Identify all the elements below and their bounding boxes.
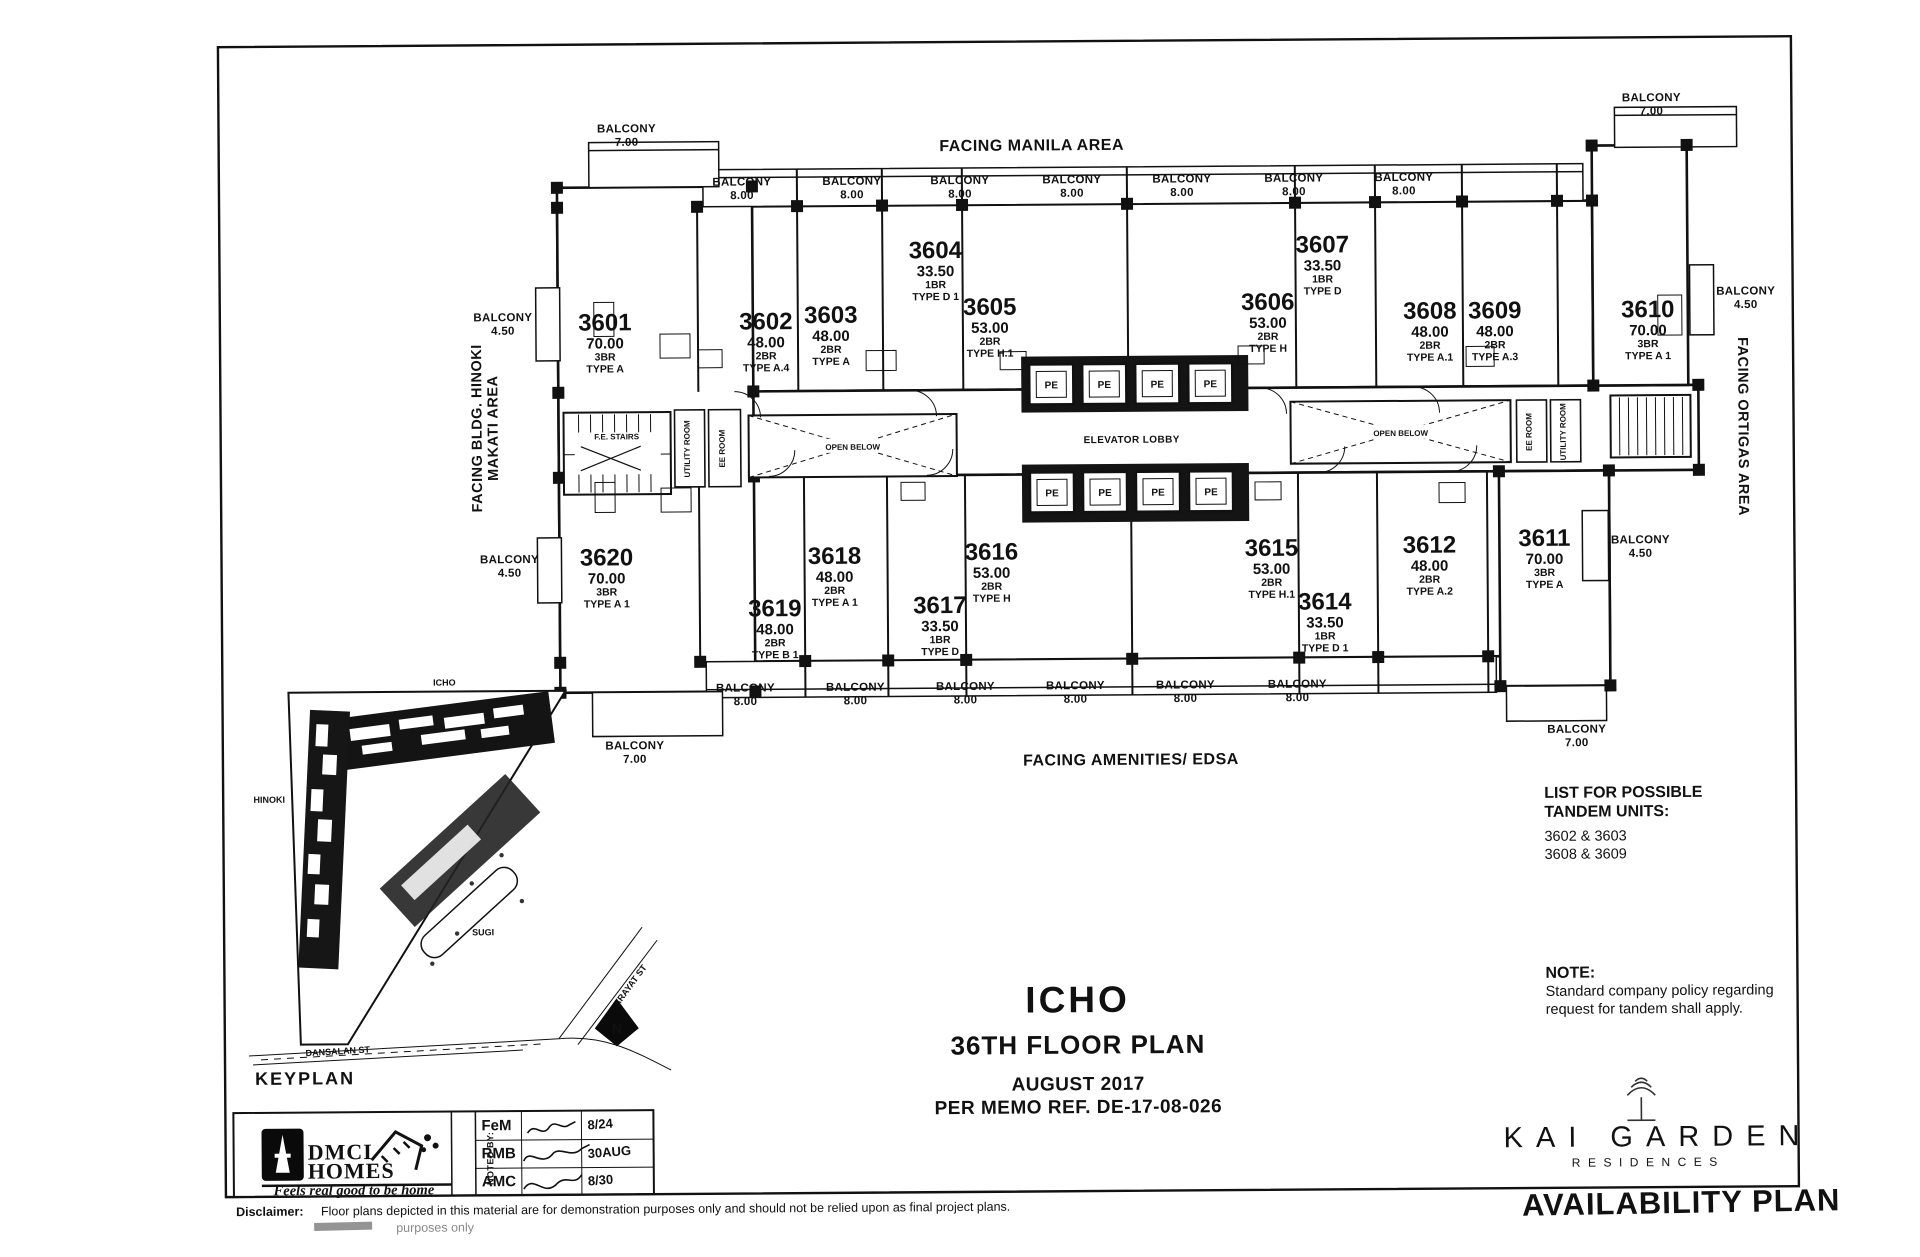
balcony-label: BALCONY bbox=[822, 176, 881, 188]
dmci-tagline: Feels real good to be home bbox=[274, 1182, 435, 1200]
wall-junction bbox=[1604, 679, 1616, 691]
wall-junction bbox=[876, 199, 888, 211]
unit-bedrooms: 2BR bbox=[756, 350, 778, 362]
balcony-label: BALCONY bbox=[1611, 534, 1670, 546]
wall-junction bbox=[1586, 195, 1598, 207]
balcony-size: 4.50 bbox=[1734, 299, 1758, 311]
unit-number: 3616 bbox=[965, 539, 1019, 566]
balcony-label: BALCONY bbox=[1622, 92, 1681, 104]
signatures bbox=[523, 1122, 589, 1189]
wall-junction bbox=[1372, 651, 1384, 663]
fire-exit-stairs-right bbox=[1610, 395, 1690, 458]
open-below-label: OPEN BELOW bbox=[825, 443, 880, 452]
unit-bedrooms: 3BR bbox=[596, 586, 618, 598]
unit-number: 3606 bbox=[1241, 289, 1295, 316]
unit-wall bbox=[1487, 471, 1488, 656]
facing-manila-label: FACING MANILA AREA bbox=[939, 137, 1124, 156]
unit-wall bbox=[1298, 473, 1299, 658]
balcony-size: 8.00 bbox=[1170, 187, 1194, 199]
unit-wall bbox=[1377, 472, 1378, 657]
unit-wall bbox=[1375, 202, 1376, 387]
unit-area: 70.00 bbox=[1526, 551, 1564, 568]
unit-wall bbox=[804, 476, 805, 661]
unit-number: 3615 bbox=[1245, 535, 1299, 562]
unit-area: 53.00 bbox=[1253, 561, 1291, 578]
wall-junction bbox=[960, 654, 972, 666]
utility-room-label: UTILITY ROOM bbox=[1558, 403, 1567, 461]
unit-bedrooms: 3BR bbox=[1534, 567, 1556, 579]
wall-junction bbox=[1681, 139, 1693, 151]
balcony-label: BALCONY bbox=[1716, 285, 1775, 297]
approval-initials: AMC bbox=[482, 1173, 516, 1190]
balcony-size: 8.00 bbox=[734, 696, 758, 708]
wall-junction bbox=[1289, 197, 1301, 209]
unit-bedrooms: 3BR bbox=[1637, 338, 1659, 350]
wall-junction bbox=[1482, 650, 1494, 662]
unit-area: 33.50 bbox=[917, 263, 955, 280]
unit-number: 3611 bbox=[1518, 525, 1570, 552]
elevator-pe-label: PE bbox=[1045, 380, 1059, 391]
unit-bedrooms: 3BR bbox=[595, 351, 617, 363]
elevator-pe-label: PE bbox=[1204, 487, 1218, 498]
balcony-size: 8.00 bbox=[1392, 185, 1416, 197]
unit-bedrooms: 1BR bbox=[925, 279, 947, 291]
unit-type: TYPE D bbox=[1304, 285, 1342, 297]
unit-type: TYPE A.4 bbox=[743, 362, 790, 374]
unit-type: TYPE A 1 bbox=[812, 597, 858, 609]
balcony-label: BALCONY bbox=[1264, 172, 1323, 184]
balcony-size: 7.00 bbox=[1565, 737, 1589, 749]
unit-area: 33.50 bbox=[1306, 614, 1344, 631]
balcony-label: BALCONY bbox=[716, 682, 775, 694]
unit-area: 48.00 bbox=[1476, 323, 1514, 340]
balcony-label: BALCONY bbox=[1156, 679, 1215, 691]
wall-junction bbox=[882, 654, 894, 666]
tree-stamp-icon bbox=[1627, 1078, 1655, 1120]
unit-bedrooms: 2BR bbox=[1419, 574, 1441, 586]
balcony-size: 4.50 bbox=[498, 568, 522, 580]
balcony-label: BALCONY bbox=[1268, 678, 1327, 690]
unit-area: 53.00 bbox=[971, 320, 1009, 337]
unit-number: 3612 bbox=[1403, 532, 1457, 559]
wall-junction bbox=[1692, 379, 1704, 391]
balcony-label: BALCONY bbox=[1046, 680, 1105, 692]
keyplan-hinoki-label: HINOKI bbox=[253, 795, 285, 805]
balcony-size: 8.00 bbox=[948, 188, 972, 200]
unit-number: 3610 bbox=[1621, 296, 1675, 323]
wall-junction bbox=[791, 200, 803, 212]
unit-wall bbox=[887, 476, 888, 661]
unit-type: TYPE A.1 bbox=[1407, 352, 1454, 364]
kai-garden-residences: RESIDENCES bbox=[1572, 1155, 1725, 1170]
unit-bedrooms: 2BR bbox=[821, 344, 843, 356]
wall-junction bbox=[551, 202, 563, 214]
unit-area: 48.00 bbox=[756, 621, 794, 638]
plan-date: AUGUST 2017 bbox=[1011, 1074, 1144, 1097]
balcony-size: 8.00 bbox=[954, 694, 978, 706]
unit-area: 48.00 bbox=[816, 569, 854, 586]
disclaimer-label: Disclaimer: bbox=[236, 1205, 304, 1219]
wall-junction bbox=[1551, 195, 1563, 207]
unit-type: TYPE A.2 bbox=[1407, 586, 1454, 598]
ee-room-label: EE ROOM bbox=[1525, 413, 1534, 451]
wall-junction bbox=[694, 656, 706, 668]
facing-ortigas-label: FACING ORTIGAS AREA bbox=[1734, 337, 1751, 516]
facing-makati-label: FACING BLDG. HINOKI MAKATI AREA bbox=[469, 344, 502, 512]
balcony-label: BALCONY bbox=[480, 554, 539, 566]
wall-junction bbox=[554, 657, 566, 669]
wall-junction bbox=[1494, 680, 1506, 692]
unit-number: 3607 bbox=[1296, 231, 1350, 258]
unit-area: 48.00 bbox=[747, 334, 785, 351]
wall-junction bbox=[552, 387, 564, 399]
unit-area: 33.50 bbox=[1304, 257, 1342, 274]
approval-initials: FeM bbox=[481, 1117, 511, 1134]
wall-junction bbox=[1693, 464, 1705, 476]
fe-stairs-label: F.E. STAIRS bbox=[594, 432, 639, 441]
north-label: N bbox=[612, 1020, 622, 1036]
disclaimer-fragment: purposes only bbox=[396, 1220, 474, 1235]
balcony-size: 8.00 bbox=[1064, 694, 1088, 706]
balcony-size: 8.00 bbox=[840, 189, 864, 201]
wall-junction bbox=[1456, 195, 1468, 207]
open-below-left: OPEN BELOW bbox=[749, 414, 957, 477]
elevator-pe-label: PE bbox=[1204, 379, 1218, 390]
unit-type: TYPE H.1 bbox=[967, 348, 1014, 360]
balcony-label: BALCONY bbox=[1547, 723, 1606, 735]
unit-type: TYPE D 1 bbox=[912, 291, 959, 303]
unit-wall bbox=[965, 475, 966, 660]
balcony-label: BALCONY bbox=[930, 175, 989, 187]
unit-number: 3620 bbox=[580, 544, 634, 571]
unit-number: 3617 bbox=[913, 592, 967, 619]
unit-number: 3619 bbox=[748, 595, 802, 622]
unit-bedrooms: 1BR bbox=[930, 634, 952, 646]
open-below-right: OPEN BELOW bbox=[1290, 400, 1510, 464]
unit-type: TYPE A bbox=[812, 356, 850, 368]
balcony-size: 8.00 bbox=[730, 190, 754, 202]
elevator-pe-label: PE bbox=[1098, 380, 1112, 391]
tandem-note: NOTE: Standard company policy regarding … bbox=[1545, 962, 1773, 1019]
unit-bedrooms: 2BR bbox=[979, 336, 1001, 348]
unit-number: 3618 bbox=[808, 543, 862, 570]
wall-junction bbox=[1603, 464, 1615, 476]
unit-number: 3608 bbox=[1403, 298, 1457, 325]
unit-area: 48.00 bbox=[1411, 558, 1449, 575]
unit-bedrooms: 2BR bbox=[824, 585, 846, 597]
memo-reference: PER MEMO REF. DE-17-08-026 bbox=[935, 1096, 1223, 1120]
approval-date: 8/24 bbox=[587, 1116, 613, 1133]
balcony-size: 8.00 bbox=[1286, 692, 1310, 704]
unit-number: 3609 bbox=[1468, 297, 1522, 324]
unit-area: 70.00 bbox=[1629, 322, 1667, 339]
unit-area: 70.00 bbox=[588, 570, 626, 587]
unit-number: 3601 bbox=[578, 309, 632, 336]
unit-type: TYPE D bbox=[921, 646, 959, 658]
unit-bedrooms: 2BR bbox=[1419, 340, 1441, 352]
wall-junction bbox=[1586, 140, 1598, 152]
kai-garden-wordmark: KAI GARDEN bbox=[1503, 1120, 1812, 1155]
approval-date: 8/30 bbox=[587, 1172, 613, 1189]
unit-bedrooms: 1BR bbox=[1315, 630, 1337, 642]
wall-junction bbox=[799, 655, 811, 667]
balcony-label: BALCONY bbox=[936, 681, 995, 693]
balcony-size: 7.00 bbox=[1640, 106, 1664, 118]
fire-exit-stairs-left: F.E. STAIRS bbox=[563, 412, 671, 495]
unit-type: TYPE A bbox=[586, 363, 624, 375]
scanned-page: F.E. STAIRS UTILITY ROOM EE ROOM OPEN BE… bbox=[0, 0, 1920, 1257]
floor-plan-title: 36TH FLOOR PLAN bbox=[950, 1029, 1205, 1062]
keyplan-sugi-label: SUGI bbox=[472, 927, 494, 937]
project-title: ICHO bbox=[1025, 979, 1130, 1022]
unit-type: TYPE B 1 bbox=[752, 649, 799, 661]
unit-wall bbox=[1462, 201, 1463, 386]
wall-junction bbox=[1121, 198, 1133, 210]
balcony-label: BALCONY bbox=[1152, 173, 1211, 185]
unit-wall bbox=[1557, 201, 1558, 386]
balcony-size: 8.00 bbox=[1060, 188, 1084, 200]
unit-number: 3602 bbox=[739, 308, 793, 335]
elevator-pe-label: PE bbox=[1151, 380, 1165, 391]
balcony-size: 8.00 bbox=[1174, 693, 1198, 705]
balcony-label: BALCONY bbox=[826, 682, 885, 694]
availability-plan-sheet: F.E. STAIRS UTILITY ROOM EE ROOM OPEN BE… bbox=[0, 0, 1920, 1257]
unit-type: TYPE A 1 bbox=[584, 598, 630, 610]
balcony-size: 7.00 bbox=[623, 754, 647, 766]
unit-number: 3604 bbox=[909, 237, 963, 264]
unit-number: 3605 bbox=[963, 294, 1017, 321]
unit-area: 70.00 bbox=[586, 335, 624, 352]
wall-junction bbox=[1587, 380, 1599, 392]
unit-bedrooms: 2BR bbox=[1484, 339, 1506, 351]
unit-area: 33.50 bbox=[921, 618, 959, 635]
balcony-label: BALCONY bbox=[1374, 172, 1433, 184]
facing-amenities-label: FACING AMENITIES/ EDSA bbox=[1023, 751, 1239, 771]
balcony-size: 8.00 bbox=[1282, 186, 1306, 198]
balcony-size: 8.00 bbox=[844, 695, 868, 707]
unit-area: 48.00 bbox=[1411, 324, 1449, 341]
scan-smudge bbox=[314, 1222, 372, 1231]
wall-junction bbox=[1126, 653, 1138, 665]
unit-wall bbox=[797, 206, 798, 391]
balcony-size: 7.00 bbox=[615, 137, 639, 149]
unit-type: TYPE A.3 bbox=[1472, 351, 1519, 363]
elevator-pe-label: PE bbox=[1045, 488, 1059, 499]
utility-room-label: UTILITY ROOM bbox=[683, 420, 692, 478]
keyplan-dansalan-label: DANSALAN ST bbox=[305, 1044, 370, 1058]
balcony-label: BALCONY bbox=[605, 740, 664, 752]
balcony-label: BALCONY bbox=[712, 176, 771, 188]
unit-area: 48.00 bbox=[812, 328, 850, 345]
unit-number: 3614 bbox=[1298, 588, 1352, 615]
unit-type: TYPE H bbox=[1249, 343, 1287, 355]
unit-type: TYPE D 1 bbox=[1302, 642, 1349, 654]
unit-number: 3603 bbox=[804, 302, 858, 329]
unit-wall bbox=[882, 206, 883, 391]
wall-junction bbox=[1493, 465, 1505, 477]
unit-area: 53.00 bbox=[1249, 315, 1287, 332]
unit-wall bbox=[699, 477, 700, 662]
unit-bedrooms: 2BR bbox=[765, 637, 787, 649]
unit-type: TYPE H bbox=[973, 593, 1011, 605]
balcony-size: 4.50 bbox=[1629, 548, 1653, 560]
availability-plan-title: AVAILABILITY PLAN bbox=[1522, 1182, 1841, 1224]
north-arrow-icon: N bbox=[595, 998, 639, 1046]
unit-type: TYPE H.1 bbox=[1248, 589, 1295, 601]
elevator-pe-label: PE bbox=[1098, 488, 1112, 499]
unit-bedrooms: 2BR bbox=[981, 581, 1003, 593]
unit-bedrooms: 1BR bbox=[1312, 273, 1334, 285]
ee-room-label: EE ROOM bbox=[718, 429, 727, 467]
elevator-lobby-label: ELEVATOR LOBBY bbox=[1084, 434, 1180, 446]
open-below-label: OPEN BELOW bbox=[1373, 429, 1428, 438]
balcony-label: BALCONY bbox=[1042, 174, 1101, 186]
balcony-size: 4.50 bbox=[491, 326, 515, 338]
wall-junction bbox=[691, 201, 703, 213]
balcony-label: BALCONY bbox=[473, 312, 532, 324]
elevator-pe-label: PE bbox=[1151, 488, 1165, 499]
wall-junction bbox=[956, 199, 968, 211]
keyplan-icho-label: ICHO bbox=[433, 678, 456, 688]
unit-bedrooms: 2BR bbox=[1261, 577, 1283, 589]
wall-junction bbox=[1369, 196, 1381, 208]
balcony-label: BALCONY bbox=[597, 123, 656, 135]
keyplan-title: KEYPLAN bbox=[255, 1068, 355, 1090]
dmci-homes-wordmark: DMCI HOMES bbox=[308, 1142, 395, 1181]
unit-area: 53.00 bbox=[973, 565, 1011, 582]
wall-junction bbox=[551, 182, 563, 194]
unit-bedrooms: 2BR bbox=[1257, 331, 1279, 343]
unit-type: TYPE A 1 bbox=[1625, 350, 1671, 362]
tandem-units-list: LIST FOR POSSIBLE TANDEM UNITS: 3602 & 3… bbox=[1544, 783, 1703, 864]
unit-type: TYPE A bbox=[1526, 579, 1564, 591]
approval-initials: RMB bbox=[482, 1145, 516, 1162]
unit-wall bbox=[1295, 203, 1296, 388]
